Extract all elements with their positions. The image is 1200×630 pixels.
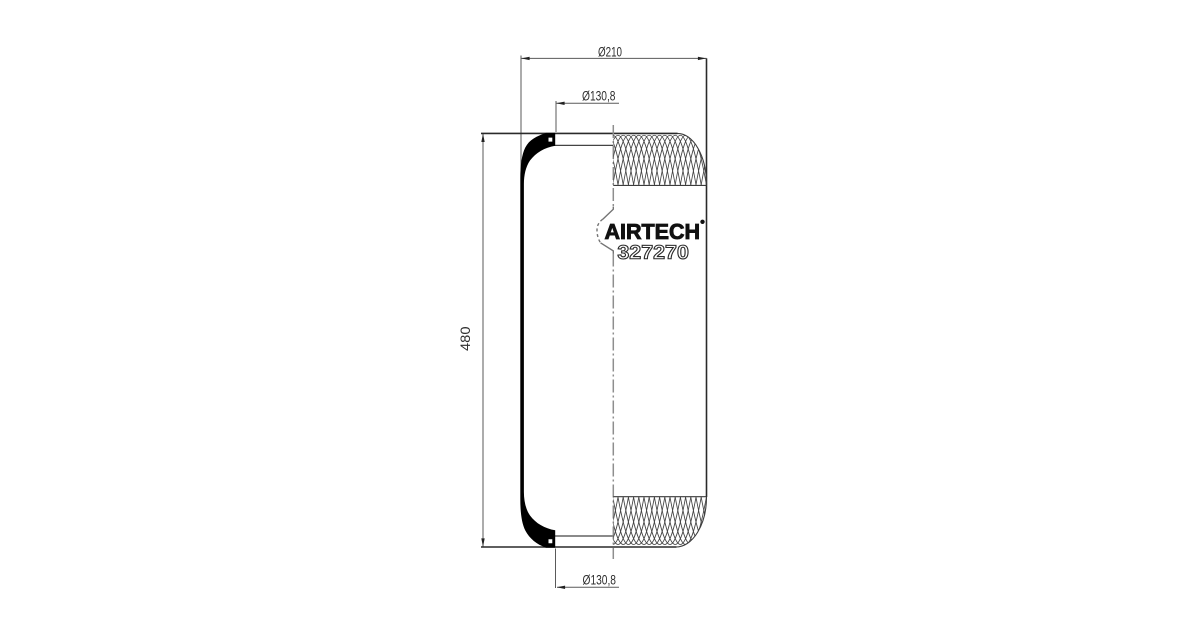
svg-text:AIRTECH: AIRTECH bbox=[604, 220, 700, 244]
svg-text:Ø130,8: Ø130,8 bbox=[582, 89, 616, 104]
svg-text:Ø210: Ø210 bbox=[598, 45, 622, 60]
svg-text:480: 480 bbox=[458, 327, 473, 352]
svg-text:Ø130,8: Ø130,8 bbox=[583, 572, 617, 587]
svg-text:327270: 327270 bbox=[617, 242, 689, 264]
